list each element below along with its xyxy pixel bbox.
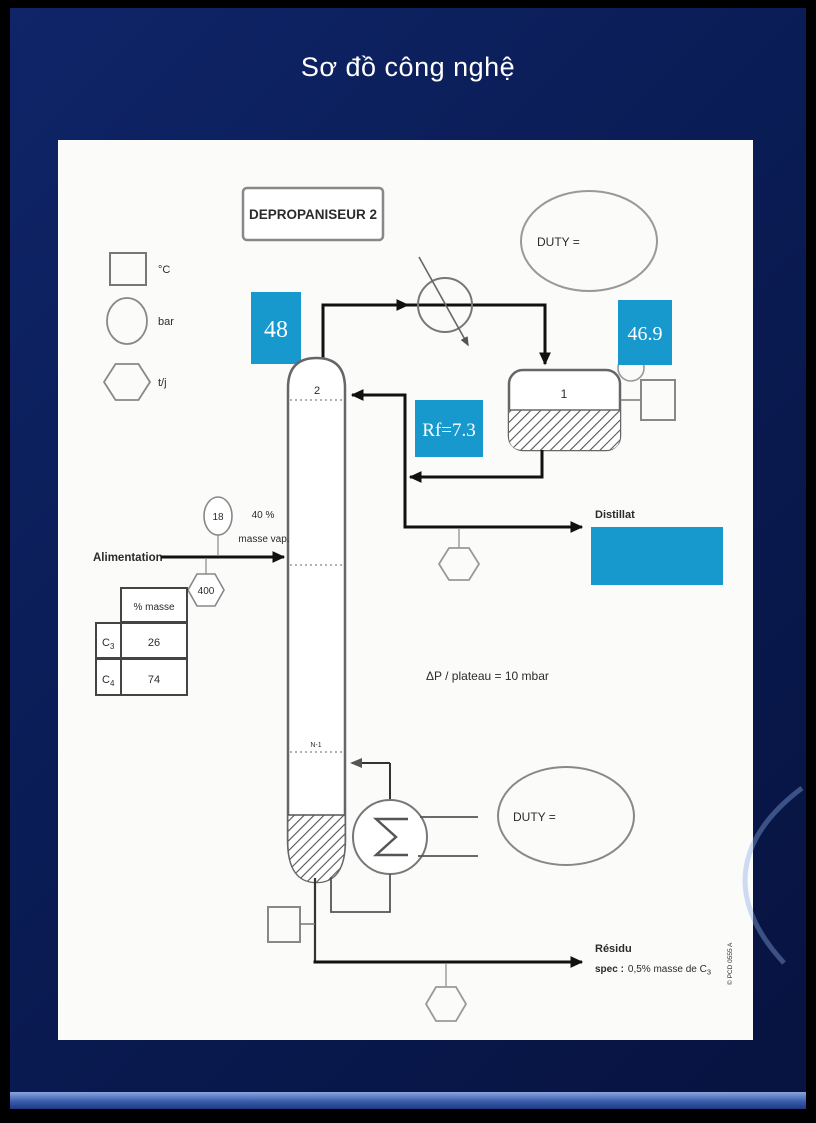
reboiler-duty: DUTY = [498,767,634,865]
residue-label: Résidu [595,943,632,955]
reflux-ratio-highlight: Rf=7.3 [415,400,483,457]
plate-dp-note: ΔP / plateau = 10 mbar [426,669,549,683]
feed-pressure-value: 18 [212,512,224,523]
residue-flow-symbol [426,987,466,1021]
feed-flow-value: 400 [198,586,215,597]
legend-flow-label: t/j [158,377,167,389]
feed-table-header: % masse [133,602,175,613]
legend-temp-label: °C [158,264,170,276]
drum-temp-value: 46.9 [628,323,663,345]
unit-title-label: DEPROPANISEUR 2 [249,207,377,222]
legend-pressure-symbol [107,298,147,344]
condenser-duty: DUTY = [521,191,657,291]
feed-table: % masse C3 26 C4 74 [96,588,187,695]
condenser [418,257,472,345]
overhead-temp-value: 48 [264,317,288,343]
overhead-line [322,305,547,364]
legend: °C bar t/j [104,253,174,400]
distillate-flow-symbol [439,548,479,580]
column-shell [288,358,345,882]
feed-vapor-note-1: 40 % [252,510,275,521]
reboiler-symbol [353,800,427,874]
overhead-temp-highlight: 48 [251,292,301,364]
reflux-ratio-value: Rf=7.3 [422,420,475,441]
process-diagram: DEPROPANISEUR 2 °C bar t/j [58,140,753,1040]
bottoms: Résidu spec :0,5% masse de C3 [268,878,711,1021]
condenser-duty-label: DUTY = [537,235,580,249]
feed-table-row2-value: 74 [148,674,160,686]
legend-flow-symbol [104,364,150,400]
drum-temp-symbol [641,380,675,420]
unit-title-box: DEPROPANISEUR 2 [243,188,383,240]
reboiler [331,763,478,912]
distillate-answer-box [591,527,723,585]
residue-spec: spec :0,5% masse de C3 [595,964,711,977]
swoosh-arc [745,788,802,963]
feed-vapor-note-2: masse vap. [238,534,289,545]
legend-pressure-label: bar [158,316,174,328]
tray-top-label: 2 [314,385,320,397]
reflux-drum: 1 [509,370,675,450]
tray-bottom-label: N-1 [310,742,321,749]
column-bottoms-liquid [288,815,344,882]
drum-tag: 1 [561,387,568,401]
drum-temp-highlight: 46.9 [618,300,672,365]
drum-liquid [509,410,620,450]
feed-label: Alimentation [93,552,163,564]
slide-title: Sơ đồ công nghệ [10,52,806,83]
distillate-label: Distillat [595,509,635,521]
feed-table-row1-value: 26 [148,637,160,649]
distillate: Distillat [591,509,723,585]
diagram-panel: DEPROPANISEUR 2 °C bar t/j [58,140,753,1040]
bottom-accent-bar [10,1092,806,1109]
slide: Sơ đồ công nghệ DEPROPANISEUR 2 [10,8,806,1109]
credit-text: © PCD 0555 A [726,942,734,985]
legend-temp-symbol [110,253,146,285]
column: 2 N-1 [288,358,345,882]
reboiler-duty-label: DUTY = [513,810,556,824]
bottoms-temp-symbol [268,907,300,942]
reboiler-liquid-loop [331,874,390,912]
